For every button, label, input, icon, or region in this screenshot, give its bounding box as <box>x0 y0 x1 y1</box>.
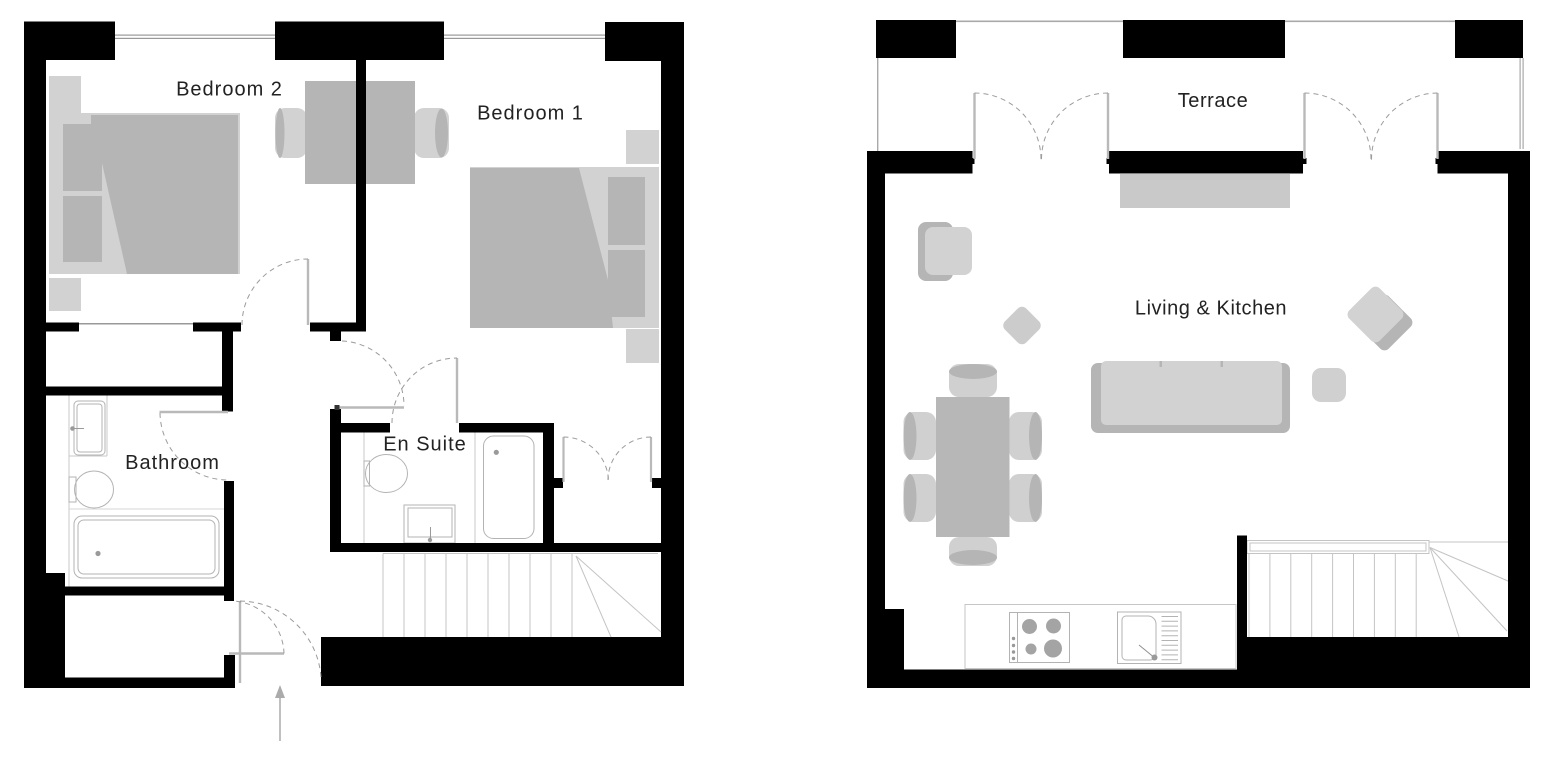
svg-text:Bathroom: Bathroom <box>125 452 220 474</box>
svg-text:Bedroom 1: Bedroom 1 <box>477 103 584 125</box>
svg-text:En Suite: En Suite <box>383 434 467 456</box>
svg-text:Living & Kitchen: Living & Kitchen <box>1135 298 1287 320</box>
svg-text:Bedroom 2: Bedroom 2 <box>176 79 283 101</box>
svg-text:Terrace: Terrace <box>1178 90 1249 112</box>
